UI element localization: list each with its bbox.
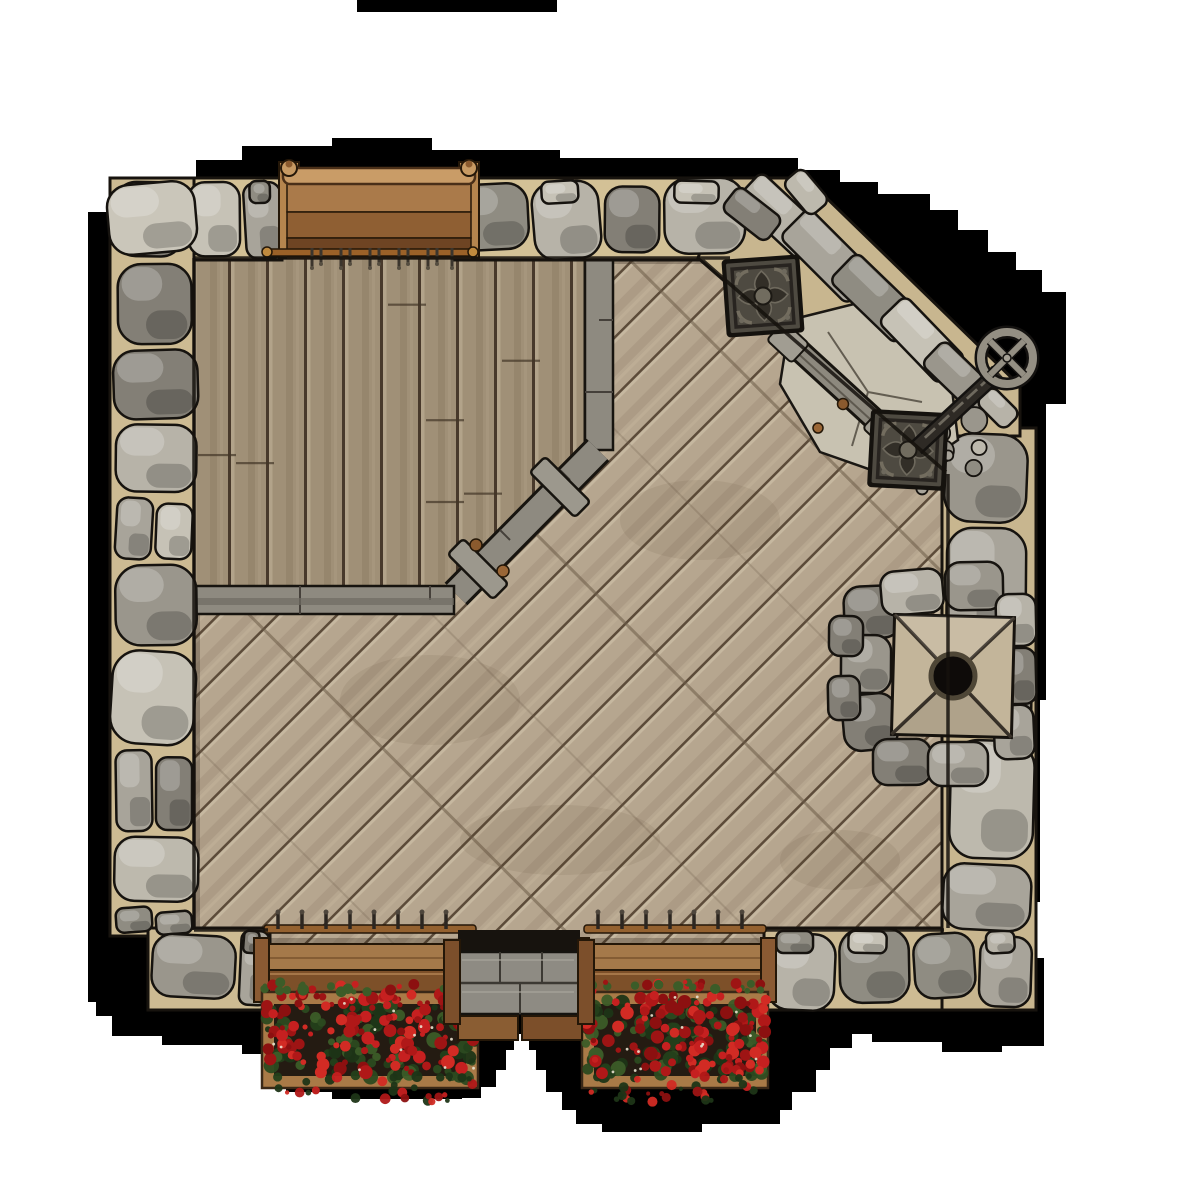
rubble-pebble (972, 440, 987, 455)
ornate-floor-grate (721, 254, 804, 337)
wall-rock (114, 836, 199, 902)
wall-rock (115, 906, 153, 933)
wooden-peg (813, 423, 823, 433)
wooden-peg (497, 565, 509, 577)
step-post (578, 940, 594, 1024)
wall-rock (941, 862, 1032, 932)
wooden-peg (838, 399, 849, 410)
wall-rock (848, 931, 887, 954)
wall-rock (155, 910, 193, 935)
wall-rock (117, 264, 191, 345)
wall-rock (115, 564, 197, 645)
wall-rock (605, 186, 660, 252)
wall-rock (115, 750, 152, 831)
wall-rock (156, 757, 192, 830)
wall-rock (776, 931, 813, 953)
wall-rock (109, 649, 198, 747)
wall-rock (828, 676, 861, 721)
wall-rock (928, 742, 988, 786)
wooden-bench (279, 160, 479, 259)
wall-rock (114, 497, 154, 560)
wall-rock (829, 616, 863, 656)
wall-rock (541, 180, 579, 204)
step-post (444, 940, 460, 1024)
wall-rock (674, 181, 719, 204)
wall-rock (112, 349, 198, 420)
wall-rock (873, 739, 931, 785)
wooden-peg (470, 539, 482, 551)
wall-rock (150, 933, 236, 1000)
wall-rock (115, 424, 196, 492)
wall-rock (249, 181, 270, 203)
wall-rock (945, 561, 1004, 610)
wall-rock (155, 503, 193, 560)
battle-map (0, 0, 1200, 1200)
wall-rock (105, 179, 199, 256)
wall-rock (986, 930, 1016, 954)
wall-rock (879, 567, 945, 616)
wooden-steps (444, 930, 594, 1040)
rubble-pebble (965, 460, 981, 476)
wall-rock (912, 932, 976, 1000)
map-viewport (0, 0, 1200, 1200)
